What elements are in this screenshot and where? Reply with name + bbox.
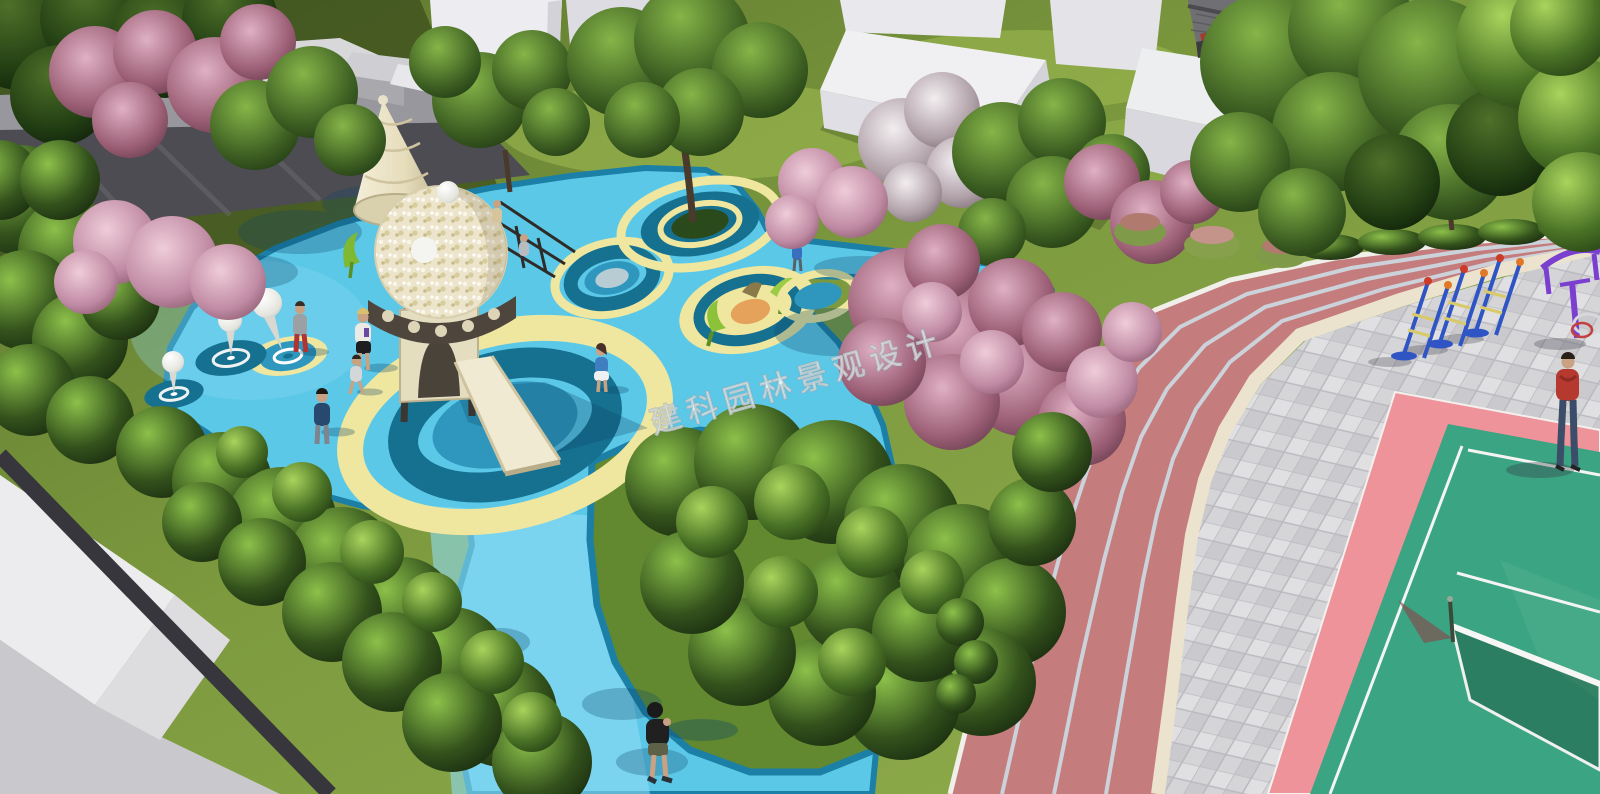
render-canvas: 建科园林景观设计 [0, 0, 1600, 794]
landscape-render: 建科园林景观设计 [0, 0, 1600, 794]
white-cube [840, 0, 1006, 38]
dome-ball [437, 181, 459, 203]
balloon [162, 351, 184, 373]
white-ball [411, 237, 437, 263]
sprout-stem [350, 262, 352, 278]
cone-tip [378, 95, 388, 105]
net-pole-cap [1447, 596, 1453, 602]
